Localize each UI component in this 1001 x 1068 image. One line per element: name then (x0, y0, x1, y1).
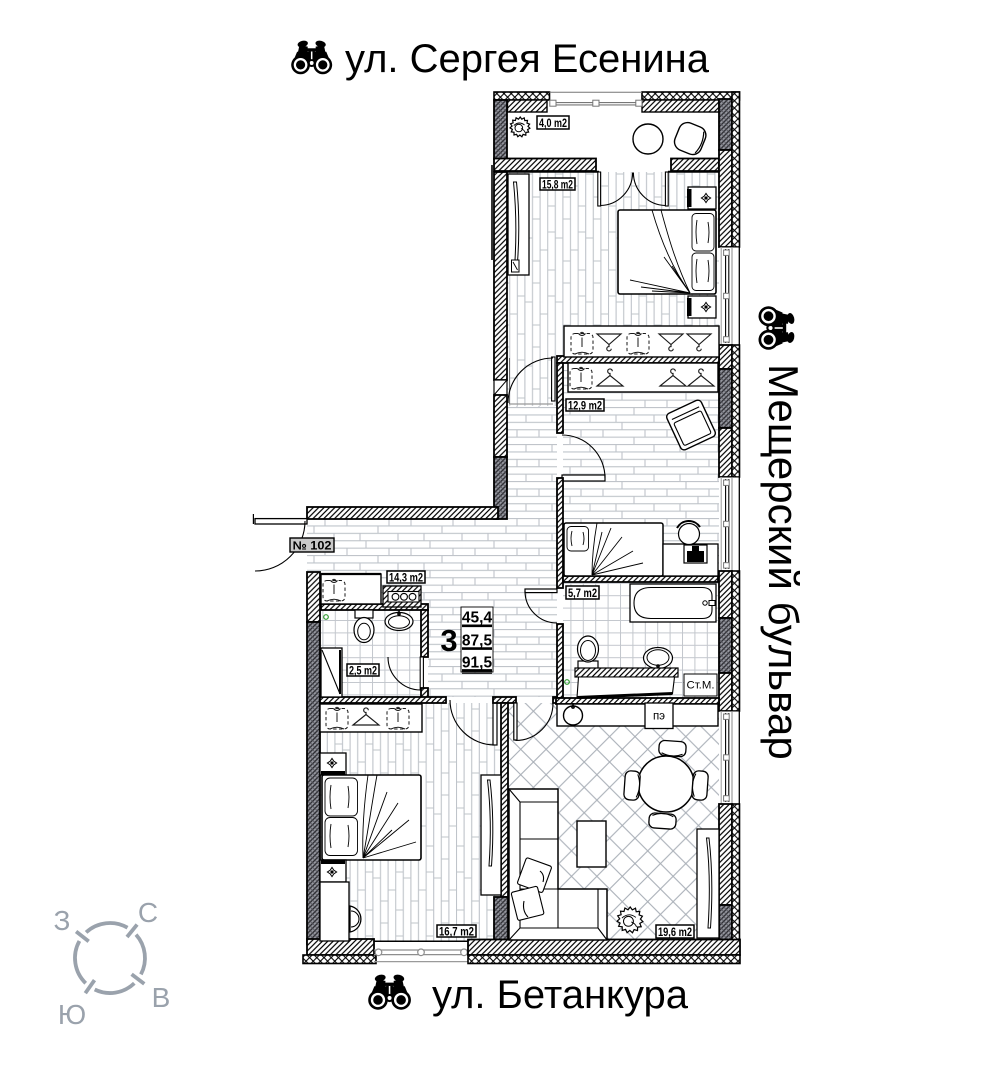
svg-text:15,8 m2: 15,8 m2 (542, 177, 573, 191)
svg-text:2,5 m2: 2,5 m2 (349, 663, 377, 677)
svg-text:№ 102: № 102 (293, 539, 332, 553)
svg-text:Ст.М.: Ст.М. (687, 680, 715, 692)
svg-text:45,4: 45,4 (462, 610, 493, 627)
svg-text:16,7 m2: 16,7 m2 (439, 924, 474, 938)
svg-text:З: З (54, 905, 71, 936)
svg-text:Мещерский бульвар: Мещерский бульвар (760, 364, 807, 760)
svg-text:пэ: пэ (653, 711, 665, 723)
svg-text:В: В (152, 982, 171, 1013)
svg-text:Ю: Ю (58, 999, 86, 1030)
svg-text:С: С (138, 897, 158, 928)
svg-text:87,5: 87,5 (462, 633, 493, 650)
svg-text:5,7 m2: 5,7 m2 (568, 586, 597, 600)
svg-text:ул. Сергея Есенина: ул. Сергея Есенина (345, 37, 710, 81)
svg-text:4,0 m2: 4,0 m2 (539, 116, 567, 130)
svg-text:14,3 m2: 14,3 m2 (389, 570, 423, 584)
svg-text:19,6 m2: 19,6 m2 (658, 925, 692, 939)
svg-text:91,5: 91,5 (462, 655, 493, 672)
svg-text:12,9 m2: 12,9 m2 (568, 398, 602, 412)
svg-text:ул. Бетанкура: ул. Бетанкура (432, 973, 689, 1017)
svg-text:3: 3 (440, 623, 457, 658)
